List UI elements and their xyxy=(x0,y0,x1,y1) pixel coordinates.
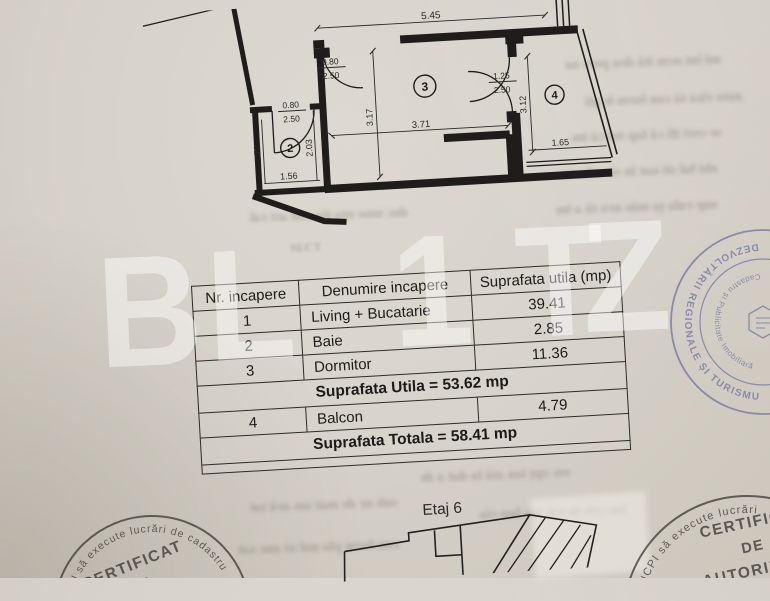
stamp-right-line2: DE xyxy=(740,537,766,557)
stamps-overlay: ă de ANCPI să execute lucrări de cadastr… xyxy=(0,0,770,578)
stamp-blue-ministry: DEZVOLTĂRII REGIONALE ȘI TURISMULUI Cada… xyxy=(671,0,770,414)
stamp-certificat-left: ă de ANCPI să execute lucrări de cadastr… xyxy=(24,486,279,578)
stamp-emblem xyxy=(749,306,770,338)
stamp-certificat-right: autorizată de ANCPI să execute lucrări C… xyxy=(576,449,770,578)
stamp-blue-inner-text: Cadastru și Publicitate Imobiliară xyxy=(713,272,761,371)
